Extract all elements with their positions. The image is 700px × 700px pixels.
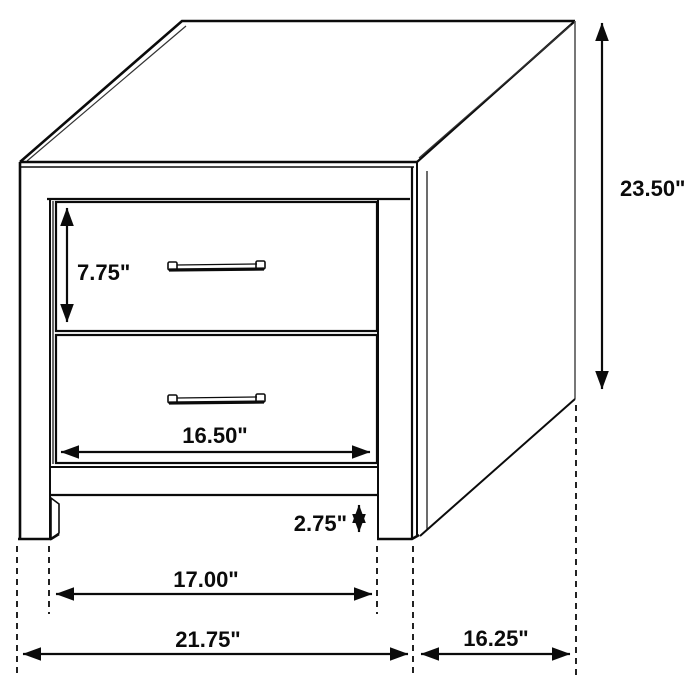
dim-side-depth-label: 16.25" [463, 626, 528, 651]
dim-top-drawer-height-label: 7.75" [77, 260, 130, 285]
technical-drawing-canvas: 23.50" 7.75" 16.50" 2.75" 17.00" 21.75" … [0, 0, 700, 700]
dim-overall-width-label: 21.75" [175, 627, 240, 652]
dim-drawer-width-label: 16.50" [182, 423, 247, 448]
top-face [20, 21, 575, 167]
handle-bar [169, 402, 264, 403]
top-back-edge [20, 21, 575, 162]
left-leg-side-face [51, 498, 59, 539]
top-left-miter-inner [27, 26, 186, 161]
dim-overall-height-label: 23.50" [620, 176, 685, 201]
dim-side-depth: 16.25" [421, 626, 570, 654]
dim-inner-leg-span: 17.00" [56, 567, 372, 594]
dim-inner-leg-span-label: 17.00" [173, 567, 238, 592]
side-panel [417, 21, 575, 536]
side-bottom-edge [420, 399, 575, 536]
nightstand-dimension-diagram: 23.50" 7.75" 16.50" 2.75" 17.00" 21.75" … [0, 0, 700, 700]
dim-base-clearance: 2.75" [294, 505, 359, 536]
dim-overall-height: 23.50" [602, 23, 685, 389]
top-right-miter-inner [419, 25, 571, 158]
dim-overall-width: 21.75" [23, 627, 408, 654]
dim-base-clearance-label: 2.75" [294, 511, 347, 536]
handle-bar [169, 269, 264, 270]
